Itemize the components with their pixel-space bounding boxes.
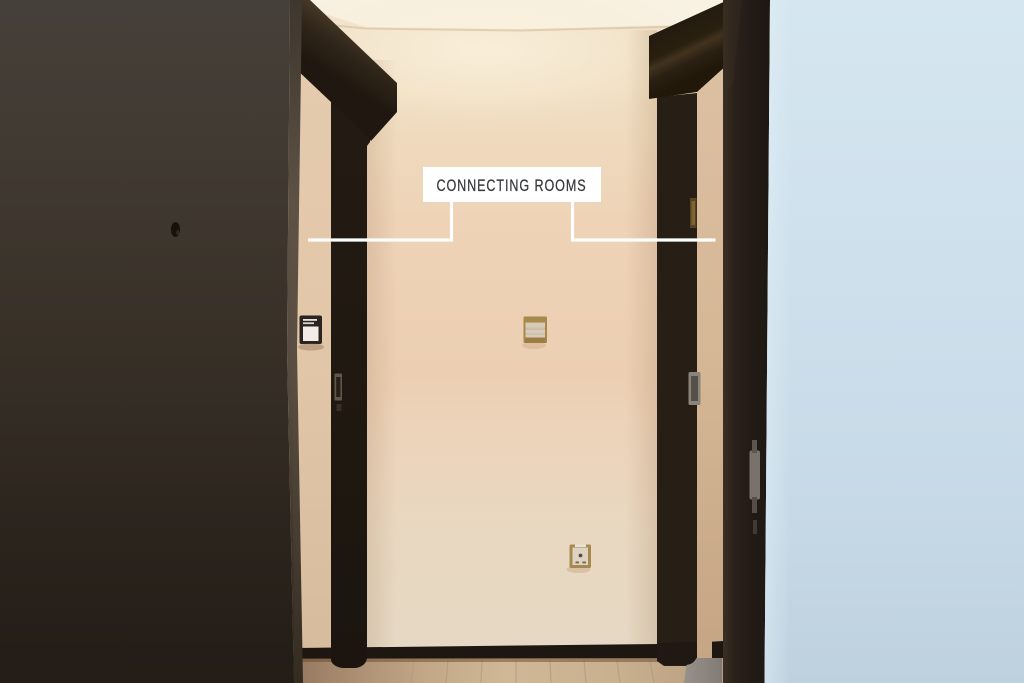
svg-text:CONNECTING ROOMS: CONNECTING ROOMS [437,176,587,195]
